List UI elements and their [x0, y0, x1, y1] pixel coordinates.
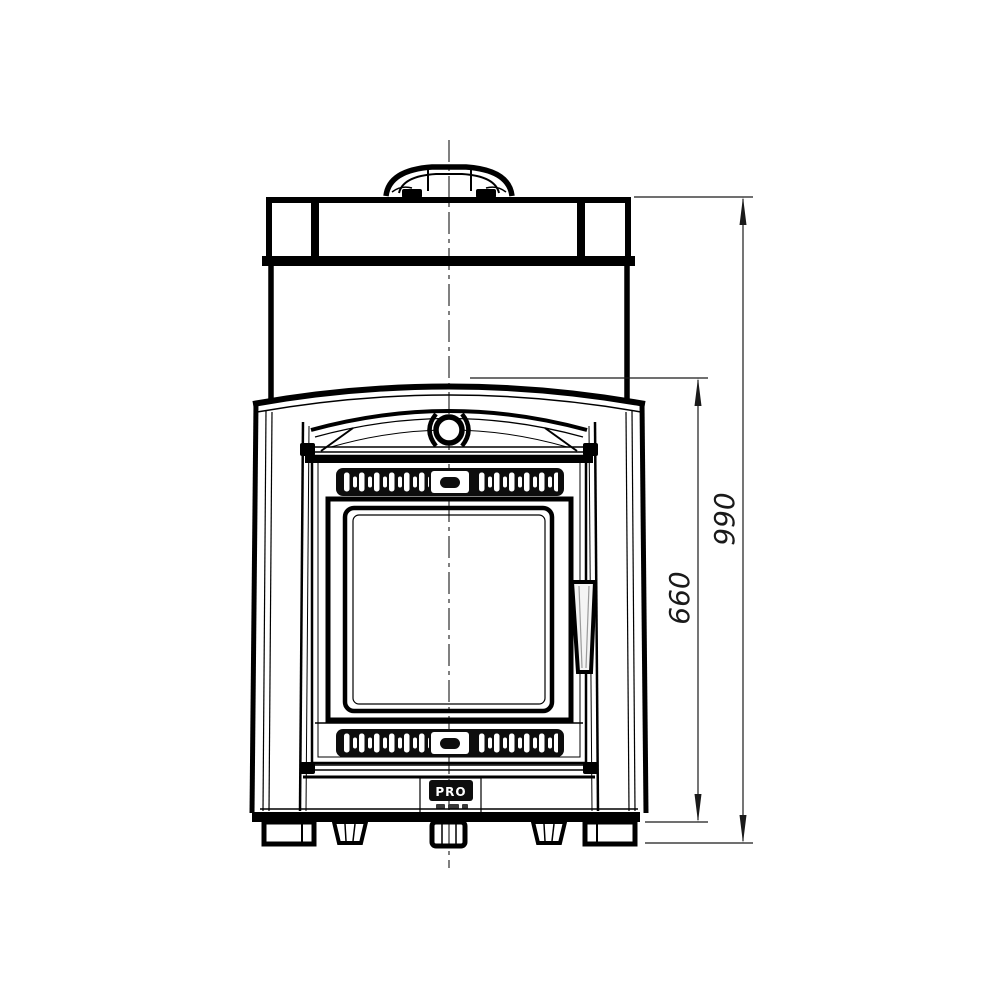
ash-front-panel: PRO — [420, 778, 481, 813]
door-handle[interactable] — [572, 582, 595, 672]
vent-center-oval-top — [440, 477, 460, 488]
collar-foot-right — [476, 189, 496, 198]
stove-technical-drawing: PRO — [0, 0, 1000, 1000]
dimension-label-990: 990 — [708, 492, 741, 545]
vent-center-oval-bottom — [440, 738, 460, 749]
collar-foot-left — [402, 189, 422, 198]
arrowhead-up-660 — [695, 378, 702, 406]
foot-corner-left — [264, 822, 314, 844]
arrowhead-down-990 — [740, 815, 747, 843]
dimension-label-660: 660 — [663, 571, 696, 624]
foot-small-right — [533, 822, 565, 843]
dimension-overall-height: 990 — [634, 197, 753, 843]
foot-small-left — [334, 822, 366, 843]
lower-vent-grille — [336, 729, 564, 757]
side-panel-right — [589, 402, 646, 813]
drawing-canvas: PRO — [0, 0, 1000, 1000]
arrowhead-up-990 — [740, 197, 747, 225]
arrowhead-down-660 — [695, 794, 702, 822]
foot-corner-right — [585, 822, 635, 844]
door-bottom-ledge — [300, 762, 598, 777]
top-cap-bottom-band — [262, 256, 635, 266]
upper-vent-grille — [336, 468, 564, 496]
brand-badge-text: PRO — [435, 785, 466, 799]
side-panel-left — [252, 402, 309, 813]
